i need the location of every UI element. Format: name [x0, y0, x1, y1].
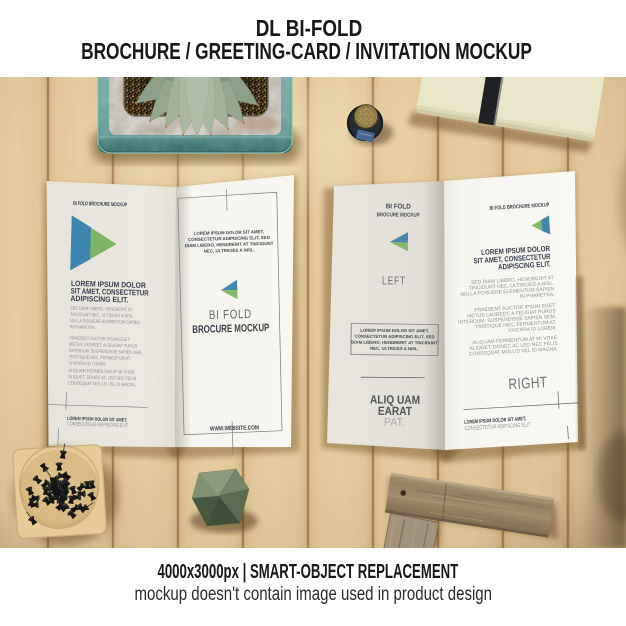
svg-text:LEFT: LEFT: [382, 274, 406, 287]
svg-text:PAT.: PAT.: [384, 417, 405, 429]
svg-text:BROCURE MOCKUP: BROCURE MOCKUP: [377, 212, 420, 218]
svg-text:BI FOLD: BI FOLD: [209, 307, 252, 322]
svg-text:NEC, ULTRICES A NISL.: NEC, ULTRICES A NISL.: [370, 346, 419, 351]
svg-text:BI FOLD: BI FOLD: [386, 203, 411, 210]
svg-text:VIVERRA ID LOREM.: VIVERRA ID LOREM.: [69, 361, 107, 367]
svg-text:CONSECTETUR ADIPISCING ELIT, S: CONSECTETUR ADIPISCING ELIT, SED: [355, 334, 435, 340]
svg-text:IN PHARETRA.: IN PHARETRA.: [70, 324, 96, 330]
svg-text:LOREM IPSUM DOLOR SIT AMET,: LOREM IPSUM DOLOR SIT AMET,: [360, 328, 429, 334]
svg-text:RIGHT: RIGHT: [508, 374, 548, 393]
svg-text:WWW.WEBSITE.COM: WWW.WEBSITE.COM: [210, 425, 259, 432]
svg-text:ADIPISCING ELIT.: ADIPISCING ELIT.: [70, 294, 128, 305]
svg-text:BROCURE MOCKUP: BROCURE MOCKUP: [192, 322, 269, 336]
svg-text:DIAM LIBERO, HENDRERIT AT TINC: DIAM LIBERO, HENDRERIT AT TINCIDUNT: [351, 340, 438, 346]
